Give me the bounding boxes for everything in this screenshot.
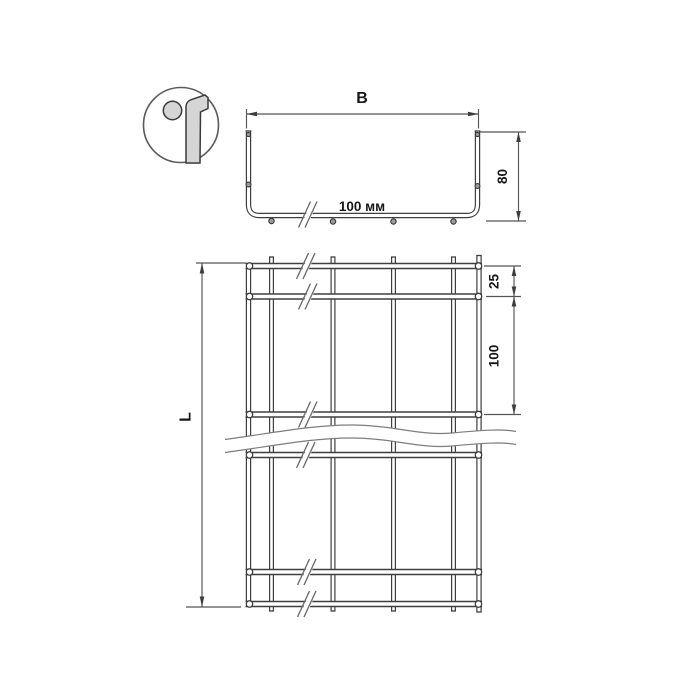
dim-label-height: 80 [495, 169, 510, 184]
rung-end [475, 293, 481, 299]
rung-end [475, 452, 481, 458]
bottom-wire-dot [391, 219, 396, 224]
dimension-80: 80 [480, 132, 526, 221]
rung-end [246, 601, 252, 607]
wire-cross-dot [246, 182, 251, 187]
drawing-page: B 80 100 мм [0, 0, 700, 700]
mesh-spacing-note: 100 мм [339, 199, 385, 214]
rung-end [475, 411, 481, 417]
dimension-b: B [247, 90, 479, 129]
detail-bubble [144, 88, 219, 164]
bottom-wire-dot [330, 219, 335, 224]
bottom-wire-dot [269, 218, 274, 223]
cross-section-view: B 80 100 мм [246, 90, 526, 228]
dim-label-pitch: 100 [487, 345, 502, 368]
rung-end [246, 569, 252, 575]
dimension-l: L [178, 263, 247, 607]
rung-end [246, 293, 252, 299]
dim-label-length: L [178, 412, 195, 422]
rung-end [475, 569, 481, 575]
wire-cross-dot [246, 132, 250, 136]
rung-end [246, 263, 252, 269]
rung-end [246, 411, 252, 417]
bottom-wire-dot [451, 219, 456, 224]
technical-drawing-canvas: B 80 100 мм [0, 0, 700, 700]
dim-label-width: B [356, 90, 368, 107]
wire-cross-dot [475, 184, 480, 189]
plan-view: L 25 100 [178, 253, 522, 617]
rung-end [475, 601, 481, 607]
edge-wire-section-icon [163, 101, 181, 119]
dim-label-end-offset: 25 [487, 274, 502, 290]
rung-end [475, 263, 481, 269]
rung-end [246, 452, 252, 458]
wire-cross-dot [475, 132, 479, 136]
dimension-25-100: 25 100 [484, 266, 521, 415]
